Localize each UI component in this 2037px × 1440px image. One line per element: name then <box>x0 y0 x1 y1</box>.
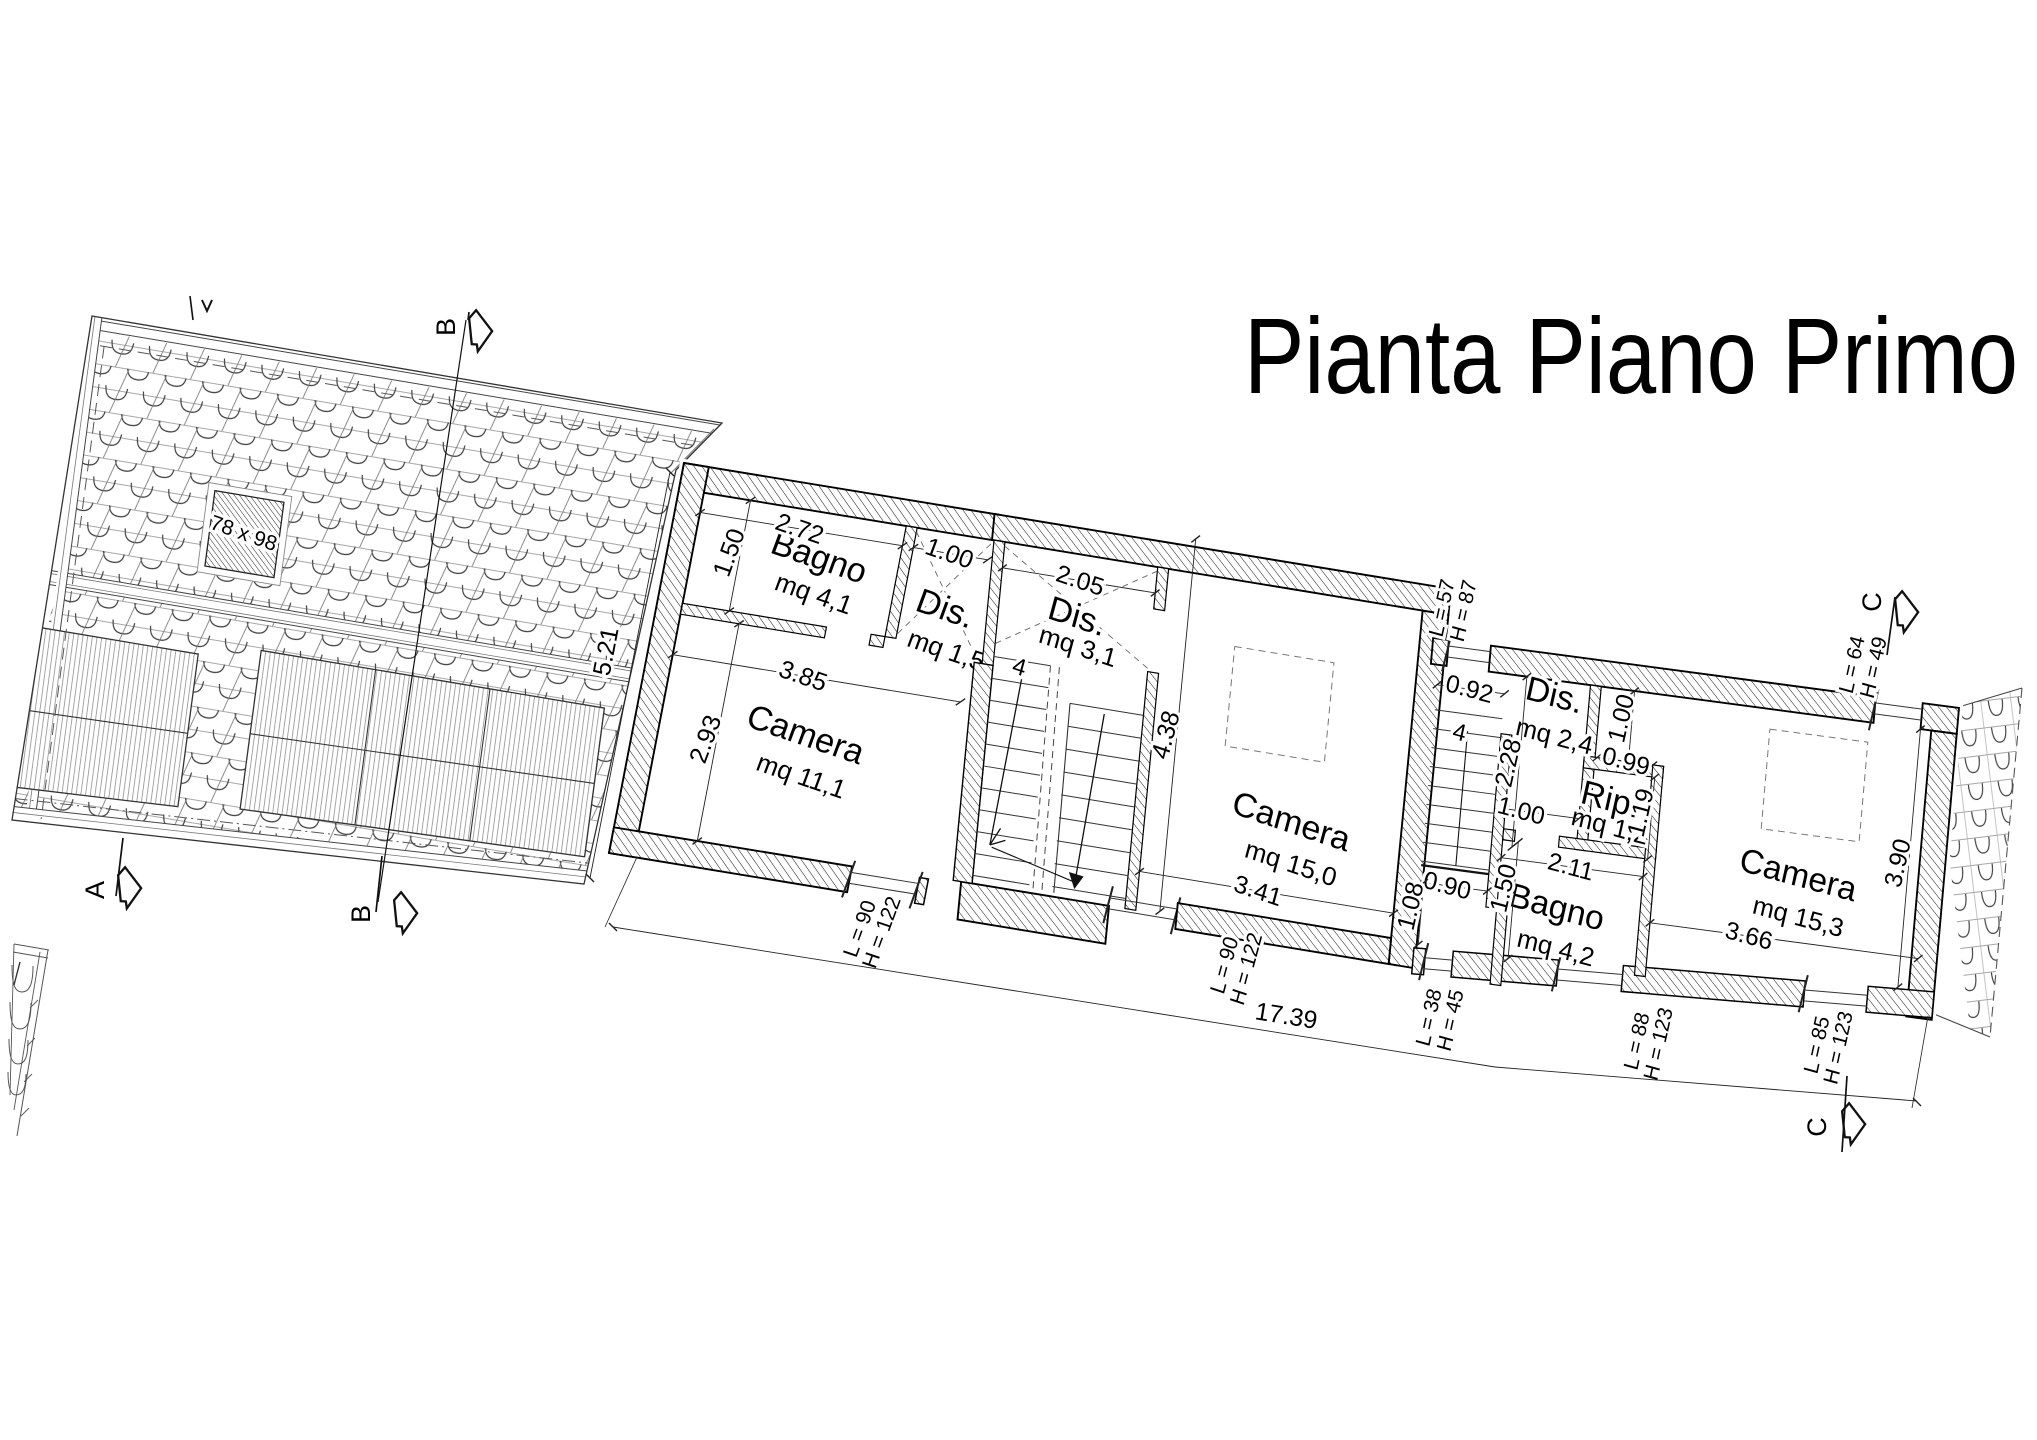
svg-text:B: B <box>431 318 461 336</box>
svg-text:C: C <box>1857 592 1887 612</box>
svg-text:A: A <box>80 881 110 899</box>
svg-text:Pianta Piano Primo: Pianta Piano Primo <box>1244 295 2018 416</box>
svg-text:C: C <box>1802 1117 1832 1137</box>
svg-text:B: B <box>346 905 376 923</box>
